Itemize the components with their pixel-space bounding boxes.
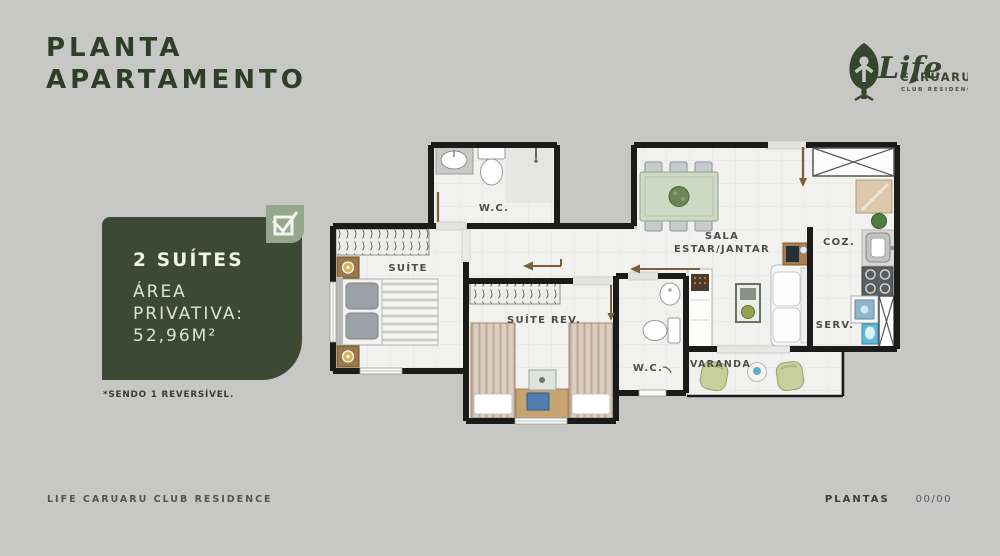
toilet bbox=[643, 318, 680, 343]
floorplan: W.C. SUÍTE SUÍTE REV. SALA ESTAR/JANTAR … bbox=[325, 110, 910, 455]
sofa bbox=[771, 265, 812, 346]
logo-city-text: CARUARU bbox=[900, 70, 968, 84]
shaft-box bbox=[879, 296, 894, 347]
checkbox-check-icon bbox=[266, 205, 304, 243]
tv-console bbox=[783, 243, 809, 265]
label-sala-2: ESTAR/JANTAR bbox=[674, 244, 770, 255]
stove bbox=[862, 267, 893, 296]
nightstand bbox=[337, 346, 359, 367]
suite-wardrobe bbox=[336, 229, 429, 255]
title-line-1: PLANTA bbox=[46, 32, 307, 64]
laundry-tank bbox=[862, 324, 878, 344]
washing-machine bbox=[851, 296, 878, 323]
footer-pagination: PLANTAS 00/00 bbox=[825, 494, 952, 505]
label-cozinha: COZ. bbox=[823, 237, 855, 248]
area-value: 52,96M² bbox=[133, 325, 244, 347]
double-bed bbox=[336, 277, 438, 347]
footer-plantas-label: PLANTAS bbox=[825, 494, 890, 505]
page-title: PLANTA APARTAMENTO bbox=[46, 32, 307, 96]
area-line-2: PRIVATIVA: bbox=[133, 303, 244, 325]
label-varanda: VARANDA bbox=[690, 359, 751, 370]
info-card-area: ÁREA PRIVATIVA: 52,96M² bbox=[133, 281, 244, 347]
sink bbox=[660, 283, 680, 305]
info-card-headline: 2 SUÍTES bbox=[133, 250, 244, 271]
sink bbox=[436, 146, 473, 174]
label-wc-rev: W.C. bbox=[633, 363, 663, 374]
label-servico: SERV. bbox=[816, 320, 854, 331]
check-badge bbox=[266, 205, 304, 243]
nightstand bbox=[337, 257, 359, 278]
brand-logo: Life CARUARU CLUB RESIDENCE bbox=[838, 30, 968, 108]
shaft-box-top bbox=[813, 148, 894, 176]
sliding-door bbox=[717, 346, 790, 353]
side-table bbox=[736, 284, 760, 322]
tv-rack bbox=[688, 269, 712, 349]
fridge bbox=[856, 180, 892, 213]
title-line-2: APARTAMENTO bbox=[46, 64, 307, 96]
logo-subtitle-text: CLUB RESIDENCE bbox=[901, 87, 968, 93]
label-suite: SUÍTE bbox=[388, 261, 427, 274]
shower-area bbox=[506, 147, 553, 203]
toilet bbox=[478, 146, 505, 185]
suite-rev-wardrobe bbox=[470, 282, 560, 304]
plant bbox=[872, 214, 887, 229]
footer-project-name: LIFE CARUARU CLUB RESIDENCE bbox=[47, 494, 273, 505]
label-suite-rev: SUÍTE REV. bbox=[507, 313, 581, 326]
kitchen-sink bbox=[862, 230, 895, 266]
marketing-plate: PLANTA APARTAMENTO Life CARUARU CLUB RES… bbox=[0, 0, 1000, 556]
single-bed bbox=[569, 323, 613, 418]
footnote: *SENDO 1 REVERSÍVEL. bbox=[103, 390, 234, 400]
area-line-1: ÁREA bbox=[133, 281, 244, 303]
label-wc-suite: W.C. bbox=[479, 203, 509, 214]
dining-table bbox=[640, 172, 718, 221]
tree-leaf-person-icon bbox=[849, 43, 878, 100]
single-bed bbox=[471, 323, 515, 418]
patio-chair bbox=[775, 360, 805, 391]
footer-page-counter: 00/00 bbox=[916, 494, 952, 505]
label-sala-1: SALA bbox=[705, 231, 739, 242]
